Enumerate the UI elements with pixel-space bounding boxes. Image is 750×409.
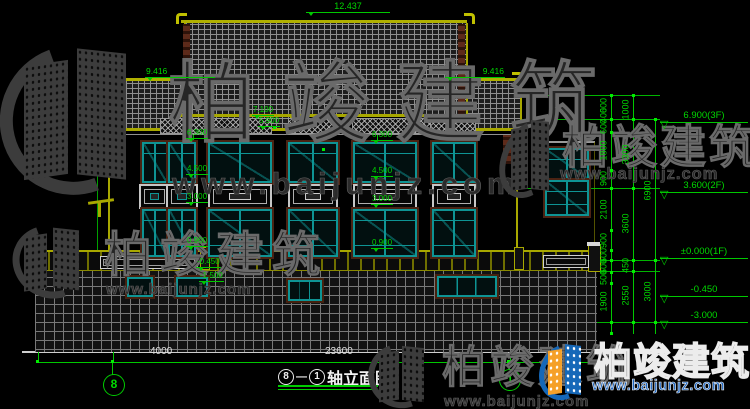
baijun-logo-icon: [540, 343, 588, 401]
dim-text: 4000: [150, 347, 172, 357]
basement-window: [437, 276, 497, 297]
dim-label: 900: [600, 162, 609, 196]
elevation-marker: 7.100: [252, 106, 274, 116]
window-lower: [432, 209, 476, 257]
level-marker-label: -3.000: [691, 310, 718, 321]
dim-label: 1900: [600, 285, 609, 319]
dim-label: 6900: [644, 174, 653, 208]
dim-label: 450: [622, 249, 631, 283]
elevation-marker: 5.900: [258, 117, 280, 127]
elevation-arrow-icon: [660, 120, 668, 131]
elevation-marker: 6.300: [186, 129, 208, 139]
baijun-logo-icon: [0, 45, 148, 195]
main-roof-ridge: [181, 20, 467, 23]
title-underline: [278, 389, 378, 390]
watermark-bottom-color: 柏竣建筑 www.baijunjz.com: [538, 340, 750, 409]
elevation-marker: -1.500: [199, 272, 224, 282]
watermark-brand: 柏竣建筑: [594, 344, 750, 382]
cad-elevation-drawing: 12.437 9.416 9.416 7.100 5.900 6.300 4.5…: [0, 0, 750, 409]
dim-label: 3300: [622, 138, 631, 172]
title-axis-circle: 8: [278, 369, 294, 385]
elevation-marker: 0.900: [186, 237, 208, 247]
watermark-url: www.baijunjz.com: [592, 379, 725, 394]
elevation-marker: 3.000: [186, 193, 208, 203]
dim-label: 3000: [644, 275, 653, 309]
level-marker: 6.900(3F): [660, 110, 748, 123]
dim-label: 2550: [622, 279, 631, 313]
title-underline: [278, 385, 378, 387]
level-marker-label: -0.450: [691, 284, 718, 295]
elevation-marker: 12.437: [306, 2, 390, 13]
dim-label: 1000: [622, 93, 631, 127]
main-roof-finial-left-icon: [176, 13, 187, 24]
axis-bubble-label: 8: [111, 377, 118, 391]
elevation-marker: 9.416: [145, 67, 215, 78]
dim-label: 2100: [600, 193, 609, 227]
dim-label: 3600: [622, 207, 631, 241]
elevation-arrow-icon: [660, 190, 668, 201]
baijun-logo-icon: [368, 344, 434, 408]
level-marker-label: 3.600(2F): [683, 180, 724, 191]
elevation-marker: -0.450: [196, 258, 221, 268]
level-marker: -3.000: [660, 310, 748, 323]
level-marker: -0.450: [660, 284, 748, 297]
axis-bubble-8: 8: [103, 374, 125, 396]
watermark-brand: 柏竣建筑: [562, 124, 750, 170]
level-marker: ±0.000(1F): [660, 246, 748, 259]
level-marker-label: ±0.000(1F): [681, 246, 727, 257]
elevation-arrow-icon: [660, 320, 668, 331]
title-separator: —: [296, 371, 307, 383]
level-marker: 3.600(2F): [660, 180, 748, 193]
elevation-marker: 6.300: [371, 131, 393, 141]
left-bracket-post: [98, 203, 101, 217]
title-axis-circle: 1: [309, 369, 325, 385]
elevation-marker: 4.500: [186, 165, 208, 175]
dim-text: 23600: [325, 347, 353, 357]
elevation-marker: 3.000: [371, 195, 393, 205]
balustrade-post: [514, 247, 524, 270]
watermark-url: www.baijunjz.com: [172, 168, 520, 199]
baijun-logo-icon: [12, 226, 90, 298]
level-marker-label: 6.900(3F): [683, 110, 724, 121]
elevation-marker: 9.416: [445, 67, 505, 78]
main-roof-finial-right-icon: [464, 13, 475, 24]
elevation-marker: 4.500: [371, 167, 393, 177]
balustrade-white-panel: [543, 255, 589, 268]
watermark-url: www.baijunjz.com: [106, 282, 251, 297]
elevation-marker: 0.900: [371, 239, 393, 249]
elevation-arrow-icon: [660, 294, 668, 305]
baijun-logo-icon: [502, 118, 558, 200]
elevation-arrow-icon: [660, 256, 668, 267]
